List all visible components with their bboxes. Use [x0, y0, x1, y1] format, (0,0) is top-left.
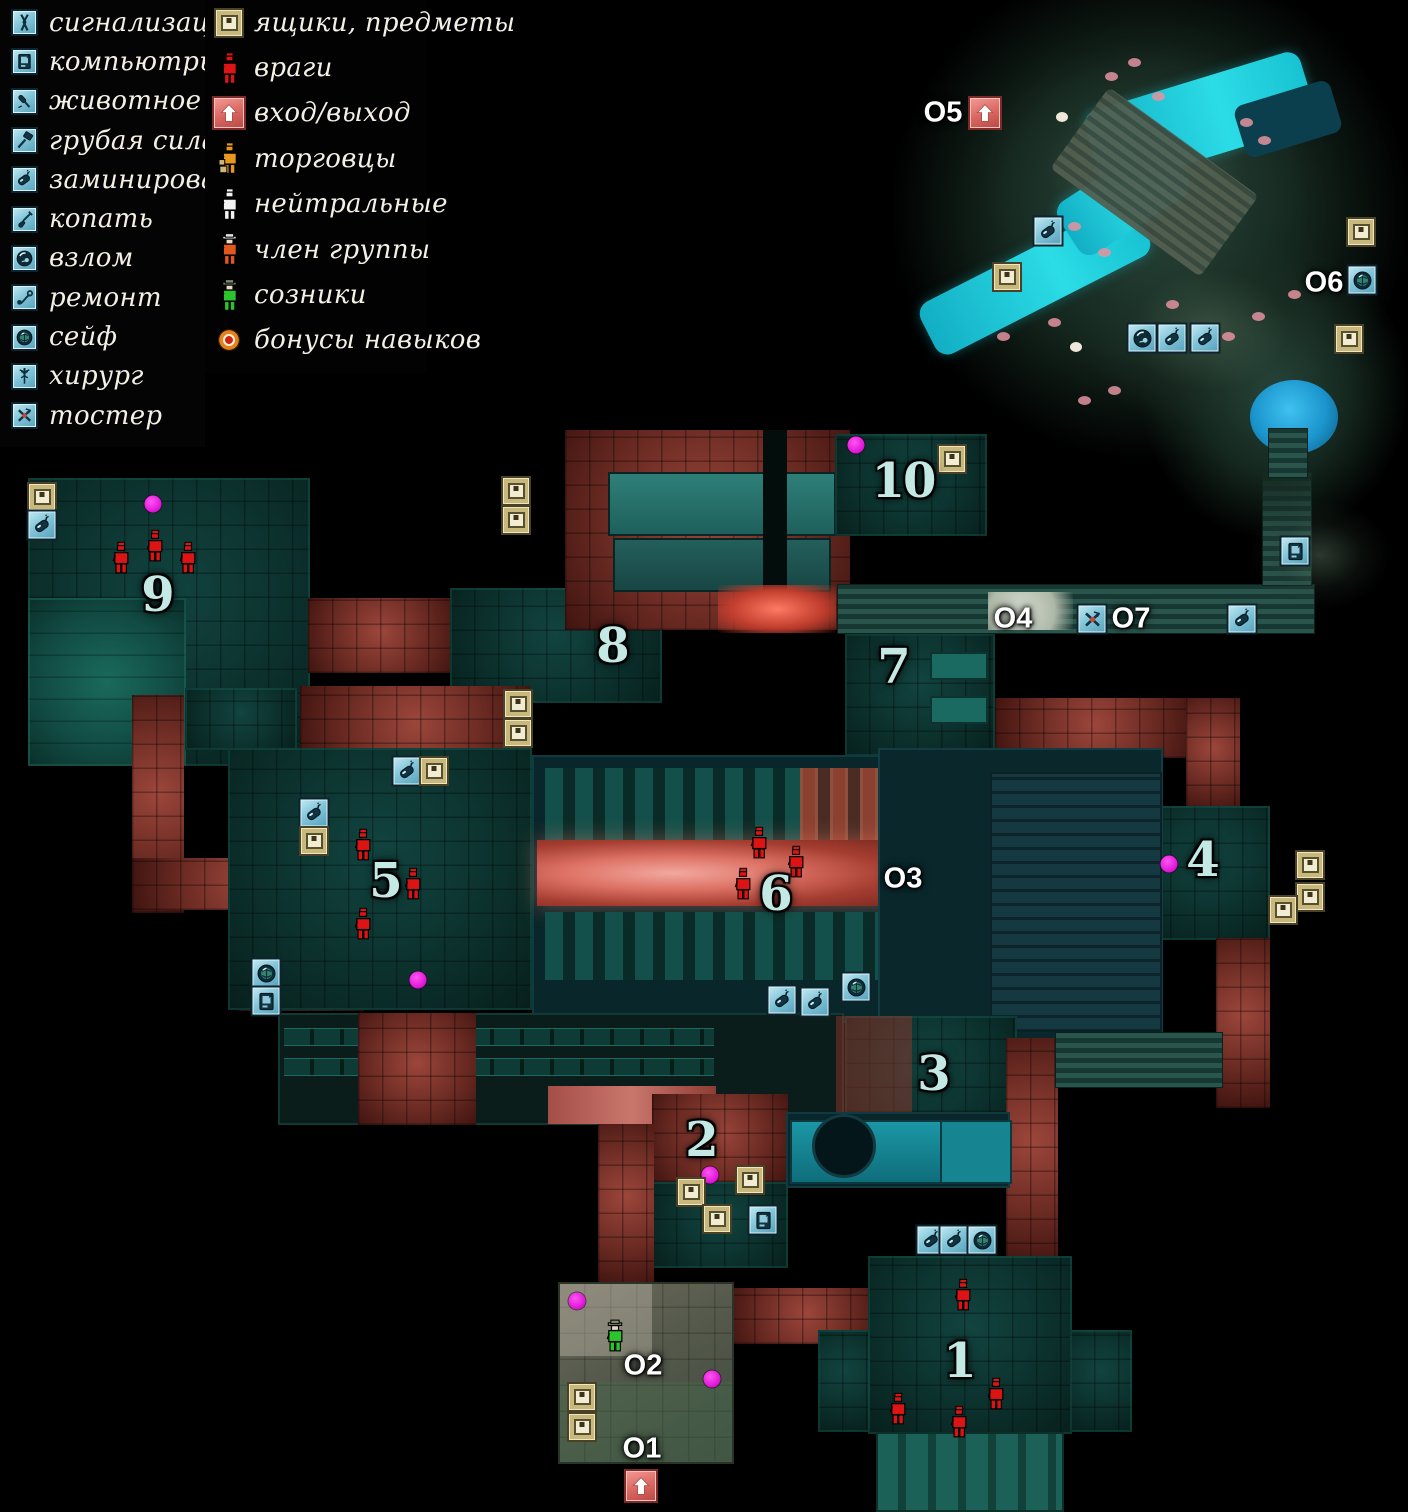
area-label-7: 7 [877, 639, 908, 695]
map-structure [1070, 1330, 1132, 1432]
marker-enemy-icon [402, 868, 425, 901]
brute-force-icon [5, 127, 43, 154]
map-structure [598, 1124, 654, 1286]
legend-item-computers: компьютры [0, 42, 205, 81]
legend-item-label: животное [49, 86, 201, 116]
legend-item-neutral: нейтральные [205, 182, 427, 227]
marker-enemy-icon [748, 827, 771, 860]
legend-item-label: грубая сила [49, 126, 217, 156]
location-label-O7: O7 [1112, 603, 1151, 636]
map-structure [1186, 698, 1240, 810]
location-label-O6: O6 [1305, 267, 1344, 300]
marker-entrance-icon [968, 96, 1002, 130]
marker-safe-icon [251, 958, 282, 989]
marker-enemy-icon [144, 530, 167, 563]
map-structure [358, 1013, 476, 1125]
cave-creature [1105, 72, 1118, 81]
cave-terrain [1268, 428, 1308, 478]
map-structure [545, 912, 890, 980]
legend-item-mined: заминировано [0, 160, 205, 199]
map-structure [284, 1028, 714, 1046]
computers-icon [5, 48, 43, 75]
legend-item-enemy: враги [205, 45, 427, 90]
legend-item-toaster: тостер [0, 396, 205, 435]
marker-mined-icon [1157, 323, 1188, 354]
map-structure [876, 1432, 1064, 1512]
legend-item-merchant: торговцы [205, 136, 427, 181]
legend-item-box: ящики, предметы [205, 0, 427, 45]
marker-bonus-icon [704, 1371, 721, 1388]
entrance-icon [210, 96, 248, 130]
animal-icon [5, 88, 43, 115]
marker-mined-icon [767, 985, 798, 1016]
legend-item-label: тостер [49, 401, 162, 431]
location-label-O5: O5 [924, 97, 963, 130]
group-member-icon [210, 233, 248, 266]
marker-box-icon [1295, 882, 1325, 912]
legend-item-surgeon: хирург [0, 357, 205, 396]
legend-item-brute-force: грубая сила [0, 121, 205, 160]
area-label-4: 4 [1186, 832, 1217, 888]
legend-item-ally: созники [205, 272, 427, 317]
location-label-O4: O4 [994, 603, 1033, 636]
mined-icon [5, 166, 43, 193]
map-structure [284, 1058, 714, 1076]
legend-item-label: хирург [49, 361, 144, 391]
marker-box-icon [1295, 850, 1325, 880]
marker-box-icon [567, 1412, 597, 1442]
map-structure [990, 772, 1162, 1032]
marker-box-icon [676, 1177, 706, 1207]
legend-item-repair: ремонт [0, 278, 205, 317]
marker-mined-icon [1033, 216, 1064, 247]
alarm-icon [5, 9, 43, 36]
marker-mined-icon [299, 798, 330, 829]
marker-enemy-icon [948, 1406, 971, 1439]
marker-bonus-icon [410, 972, 427, 989]
cave-creature [997, 332, 1010, 341]
marker-mined-icon [1190, 323, 1221, 354]
map-structure [608, 472, 836, 536]
cave-creature [1048, 318, 1061, 327]
game-map-screenshot: 12345678910O1O2O3O4O5O6O7 сигнализацияко… [0, 0, 1408, 1512]
map-structure [818, 1330, 870, 1432]
marker-box-icon [503, 689, 533, 719]
legend-item-label: ремонт [49, 283, 162, 313]
map-structure [185, 688, 297, 750]
map-structure [930, 652, 988, 680]
marker-entrance-icon [624, 1469, 658, 1503]
dig-icon [5, 206, 43, 233]
cave-creature [1258, 136, 1271, 145]
marker-bonus-icon [145, 496, 162, 513]
marker-box-icon [992, 262, 1022, 292]
cave-creature [1152, 92, 1165, 101]
map-structure [812, 1114, 876, 1178]
marker-box-icon [702, 1204, 732, 1234]
ally-icon [210, 279, 248, 312]
marker-enemy-icon [110, 542, 133, 575]
marker-toaster-icon [1077, 604, 1108, 635]
cave-creature [1288, 290, 1301, 299]
repair-icon [5, 284, 43, 311]
location-label-O1: O1 [623, 1433, 662, 1466]
legend-item-lockpick: взлом [0, 239, 205, 278]
legend-item-alarm: сигнализация [0, 3, 205, 42]
marker-ally-icon [604, 1320, 627, 1353]
legend-item-label: торговцы [254, 144, 397, 174]
legend-item-label: копать [49, 204, 153, 234]
legend-item-label: созники [254, 280, 367, 310]
cave-creature [1108, 386, 1121, 395]
cave-terrain [1250, 500, 1390, 610]
legend-item-label: компьютры [49, 47, 221, 77]
marker-enemy-icon [952, 1279, 975, 1312]
cave-creature [1078, 396, 1091, 405]
legend-item-group-member: член группы [205, 227, 427, 272]
cave-creature [1068, 222, 1081, 231]
area-label-3: 3 [917, 1046, 948, 1102]
cave-detail [1070, 342, 1082, 352]
cave-creature [1252, 312, 1265, 321]
marker-safe-icon [1347, 265, 1378, 296]
marker-box-icon [1346, 217, 1376, 247]
area-label-6: 6 [759, 866, 790, 922]
marker-mined-icon [27, 510, 58, 541]
marker-enemy-icon [352, 908, 375, 941]
marker-computers-icon [251, 986, 282, 1017]
marker-safe-icon [967, 1225, 998, 1256]
legend-item-label: нейтральные [254, 189, 448, 219]
cave-creature [1240, 118, 1253, 127]
marker-box-icon [419, 756, 449, 786]
map-structure [613, 538, 831, 592]
legend-item-label: член группы [254, 235, 430, 265]
marker-enemy-icon [177, 542, 200, 575]
marker-box-icon [501, 505, 531, 535]
marker-box-icon [1268, 895, 1298, 925]
legend-item-label: взлом [49, 243, 134, 273]
cave-detail [1056, 112, 1068, 122]
legend-item-entrance: вход/выход [205, 91, 427, 136]
enemy-icon [210, 52, 248, 85]
marker-box-icon [299, 826, 329, 856]
area-label-9: 9 [141, 567, 172, 623]
map-structure [930, 696, 988, 724]
legend-item-safe: сейф [0, 317, 205, 356]
legend-item-label: ящики, предметы [254, 8, 515, 38]
surgeon-icon [5, 363, 43, 390]
area-label-10: 10 [872, 453, 935, 509]
area-label-2: 2 [685, 1112, 716, 1168]
marker-box-icon [937, 444, 967, 474]
map-structure [940, 1120, 1012, 1184]
marker-bonus-icon [848, 437, 865, 454]
legend-item-label: сейф [49, 322, 117, 352]
marker-box-icon [735, 1165, 765, 1195]
marker-enemy-icon [887, 1393, 910, 1426]
cave-creature [1098, 248, 1111, 257]
cave-creature [1128, 58, 1141, 67]
marker-mined-icon [392, 756, 423, 787]
map-structure [652, 1094, 788, 1182]
marker-bonus-icon [569, 1293, 586, 1310]
marker-computers-icon [748, 1205, 779, 1236]
marker-box-icon [503, 718, 533, 748]
map-structure [800, 768, 890, 840]
marker-bonus-icon [1161, 856, 1178, 873]
map-structure [1216, 938, 1270, 1108]
legend-item-animal: животное [0, 82, 205, 121]
cave-creature [1222, 332, 1235, 341]
location-label-O3: O3 [884, 863, 923, 896]
map-structure [1055, 1032, 1223, 1088]
marker-mined-icon [800, 987, 831, 1018]
marker-box-icon [501, 476, 531, 506]
area-label-5: 5 [369, 853, 400, 909]
toaster-icon [5, 402, 43, 429]
skill-bonus-icon [210, 329, 248, 351]
marker-box-icon [1334, 324, 1364, 354]
legend-column-2: ящики, предметы врагивход/выход торговцы… [205, 0, 427, 373]
location-label-O2: O2 [624, 1350, 663, 1383]
map-structure [308, 598, 453, 673]
legend-item-label: бонусы навыков [254, 325, 481, 355]
box-icon [210, 8, 248, 38]
map-structure [718, 585, 836, 633]
neutral-icon [210, 188, 248, 221]
marker-mined-icon [939, 1225, 970, 1256]
lockpick-icon [5, 245, 43, 272]
marker-mined-icon [1227, 604, 1258, 635]
legend-item-skill-bonus: бонусы навыков [205, 318, 427, 363]
merchant-icon [210, 142, 248, 175]
marker-enemy-icon [732, 868, 755, 901]
marker-box-icon [27, 482, 57, 512]
marker-lockpick-icon [1127, 323, 1158, 354]
legend-item-label: враги [254, 53, 333, 83]
legend-item-dig: копать [0, 199, 205, 238]
area-label-1: 1 [943, 1333, 974, 1389]
marker-safe-icon [841, 972, 872, 1003]
marker-computers-icon [1280, 536, 1311, 567]
marker-box-icon [567, 1382, 597, 1412]
legend-column-1: сигнализациякомпьютрыживотноегрубая сила… [0, 0, 205, 447]
map-structure [537, 840, 893, 906]
cave-creature [1166, 300, 1179, 309]
legend-item-label: вход/выход [254, 98, 411, 128]
safe-icon [5, 324, 43, 351]
area-label-8: 8 [596, 618, 627, 674]
marker-enemy-icon [985, 1378, 1008, 1411]
map-structure [1006, 1038, 1058, 1268]
